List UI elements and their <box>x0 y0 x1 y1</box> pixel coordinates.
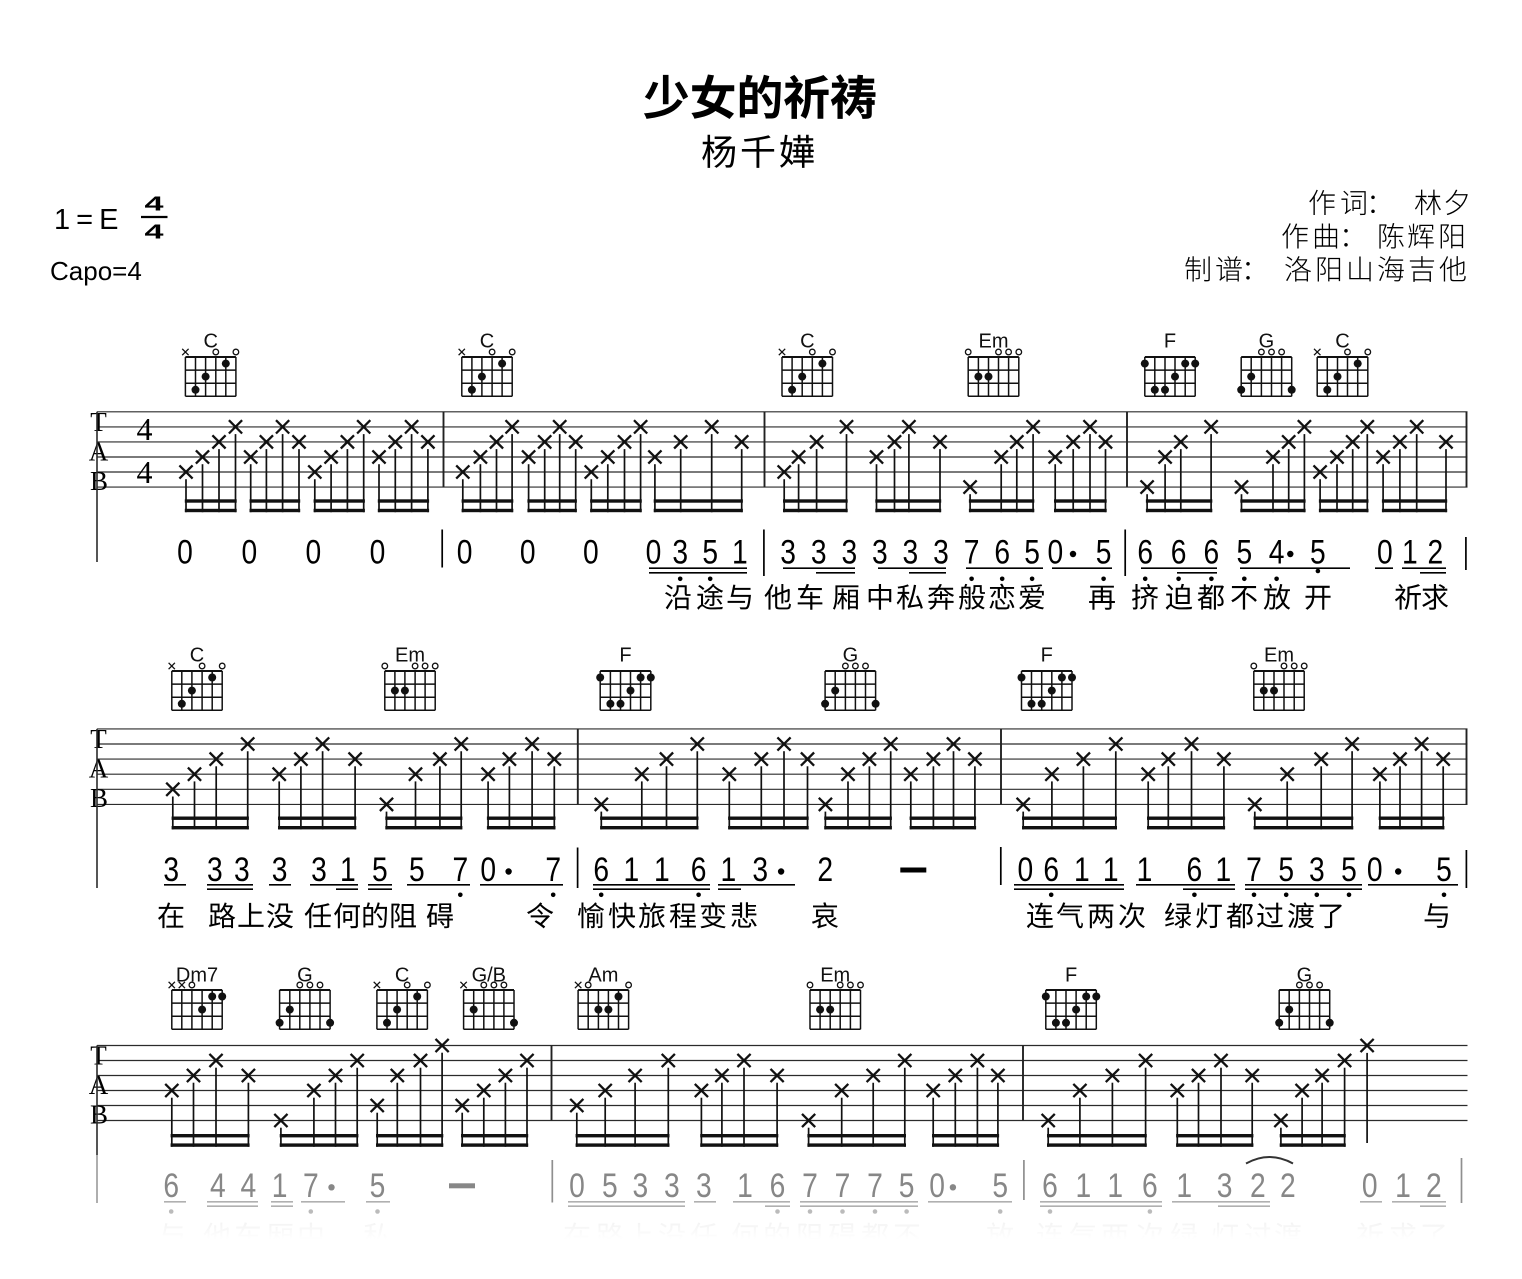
svg-text:5: 5 <box>702 533 718 571</box>
svg-text:4: 4 <box>1269 533 1285 571</box>
svg-text:5: 5 <box>1096 533 1112 571</box>
svg-text:6: 6 <box>770 1166 786 1204</box>
svg-text:1: 1 <box>654 851 670 889</box>
svg-text:B: B <box>90 1100 108 1130</box>
svg-text:3: 3 <box>811 533 827 571</box>
svg-text:7: 7 <box>835 1166 851 1204</box>
svg-text:0: 0 <box>646 533 662 571</box>
svg-text:1: 1 <box>1395 1166 1411 1204</box>
svg-text:4: 4 <box>137 411 153 447</box>
svg-text:3: 3 <box>664 1166 680 1204</box>
svg-text:1: 1 <box>1074 851 1090 889</box>
svg-text:0: 0 <box>1367 851 1383 889</box>
svg-text:Em: Em <box>820 965 850 987</box>
svg-text:1: 1 <box>272 1166 288 1204</box>
svg-text:1: 1 <box>720 851 736 889</box>
svg-text:6: 6 <box>994 533 1010 571</box>
svg-text:0: 0 <box>306 533 322 571</box>
svg-text:4: 4 <box>241 1166 257 1204</box>
svg-text:1: 1 <box>732 533 748 571</box>
svg-text:T: T <box>90 724 107 754</box>
svg-text:0: 0 <box>1377 533 1393 571</box>
svg-text:Em: Em <box>979 331 1009 353</box>
svg-text:3: 3 <box>752 851 768 889</box>
svg-text:2: 2 <box>1250 1166 1266 1204</box>
svg-text:1: 1 <box>1216 851 1232 889</box>
svg-text:2: 2 <box>1280 1166 1296 1204</box>
svg-text:2: 2 <box>817 851 833 889</box>
svg-text:5: 5 <box>1024 533 1040 571</box>
svg-text:2: 2 <box>1426 1166 1442 1204</box>
svg-text:Am: Am <box>588 965 618 987</box>
svg-text:4: 4 <box>145 222 165 244</box>
svg-text:Dm7: Dm7 <box>176 965 218 987</box>
svg-text:1: 1 <box>1075 1166 1091 1204</box>
svg-text:3: 3 <box>163 851 179 889</box>
svg-text:4: 4 <box>145 194 165 216</box>
svg-text:5: 5 <box>370 1166 386 1204</box>
svg-text:3: 3 <box>234 851 250 889</box>
svg-text:1: 1 <box>1103 851 1119 889</box>
svg-text:7: 7 <box>1246 851 1262 889</box>
svg-text:A: A <box>89 753 109 783</box>
svg-text:0: 0 <box>1047 533 1063 571</box>
svg-text:3: 3 <box>872 533 888 571</box>
svg-text:Em: Em <box>395 645 425 667</box>
svg-text:3: 3 <box>672 533 688 571</box>
svg-text:G: G <box>297 965 313 987</box>
svg-text:F: F <box>1041 645 1053 667</box>
svg-text:0: 0 <box>520 533 536 571</box>
svg-text:6: 6 <box>1142 1166 1158 1204</box>
svg-text:5: 5 <box>602 1166 618 1204</box>
svg-text:6: 6 <box>1042 1166 1058 1204</box>
svg-text:3: 3 <box>780 533 796 571</box>
svg-text:7: 7 <box>303 1166 319 1204</box>
svg-text:0: 0 <box>480 851 496 889</box>
svg-text:5: 5 <box>372 851 388 889</box>
svg-text:6: 6 <box>1043 851 1059 889</box>
svg-text:F: F <box>1164 331 1176 353</box>
svg-text:0: 0 <box>370 533 386 571</box>
svg-text:4: 4 <box>137 454 153 490</box>
svg-text:Em: Em <box>1264 645 1294 667</box>
svg-text:Capo=4: Capo=4 <box>50 256 142 286</box>
svg-text:6: 6 <box>1204 533 1220 571</box>
svg-text:T: T <box>90 407 107 437</box>
svg-text:5: 5 <box>899 1166 915 1204</box>
svg-text:4: 4 <box>210 1166 226 1204</box>
svg-text:1: 1 <box>1402 533 1418 571</box>
svg-text:1: 1 <box>340 851 356 889</box>
svg-text:F: F <box>1065 965 1077 987</box>
svg-text:B: B <box>90 466 108 496</box>
svg-text:1: 1 <box>624 851 640 889</box>
svg-text:7: 7 <box>964 533 980 571</box>
svg-text:1: 1 <box>737 1166 753 1204</box>
svg-text:1: 1 <box>1137 851 1153 889</box>
svg-text:B: B <box>90 783 108 813</box>
svg-text:7: 7 <box>867 1166 883 1204</box>
svg-text:6: 6 <box>1187 851 1203 889</box>
svg-text:5: 5 <box>992 1166 1008 1204</box>
svg-text:1: 1 <box>1176 1166 1192 1204</box>
svg-text:3: 3 <box>633 1166 649 1204</box>
svg-text:3: 3 <box>1217 1166 1233 1204</box>
svg-text:0: 0 <box>1362 1166 1378 1204</box>
svg-text:G/B: G/B <box>472 965 506 987</box>
svg-text:6: 6 <box>593 851 609 889</box>
svg-text:5: 5 <box>1341 851 1357 889</box>
svg-text:1: 1 <box>1107 1166 1123 1204</box>
svg-text:3: 3 <box>207 851 223 889</box>
svg-text:T: T <box>90 1041 107 1071</box>
svg-text:3: 3 <box>841 533 857 571</box>
svg-text:5: 5 <box>1436 851 1452 889</box>
svg-text:6: 6 <box>163 1166 179 1204</box>
svg-text:5: 5 <box>1278 851 1294 889</box>
svg-text:0: 0 <box>569 1166 585 1204</box>
svg-text:0: 0 <box>929 1166 945 1204</box>
svg-text:2: 2 <box>1427 533 1443 571</box>
svg-text:A: A <box>89 436 109 466</box>
svg-text:C: C <box>395 965 409 987</box>
svg-text:5: 5 <box>409 851 425 889</box>
svg-text:3: 3 <box>933 533 949 571</box>
svg-text:6: 6 <box>1171 533 1187 571</box>
svg-text:A: A <box>89 1070 109 1100</box>
svg-text:6: 6 <box>1137 533 1153 571</box>
svg-text:0: 0 <box>457 533 473 571</box>
svg-text:3: 3 <box>1309 851 1325 889</box>
svg-text:3: 3 <box>272 851 288 889</box>
svg-text:1=E: 1=E <box>54 204 124 236</box>
svg-text:7: 7 <box>802 1166 818 1204</box>
svg-text:5: 5 <box>1236 533 1252 571</box>
svg-text:G: G <box>1297 965 1313 987</box>
svg-text:5: 5 <box>1310 533 1326 571</box>
svg-text:0: 0 <box>177 533 193 571</box>
svg-text:0: 0 <box>242 533 258 571</box>
svg-text:0: 0 <box>1018 851 1034 889</box>
svg-text:F: F <box>619 645 631 667</box>
svg-text:7: 7 <box>545 851 561 889</box>
svg-text:0: 0 <box>583 533 599 571</box>
svg-text:6: 6 <box>691 851 707 889</box>
svg-text:3: 3 <box>311 851 327 889</box>
svg-text:3: 3 <box>903 533 919 571</box>
svg-text:7: 7 <box>452 851 468 889</box>
svg-text:3: 3 <box>696 1166 712 1204</box>
